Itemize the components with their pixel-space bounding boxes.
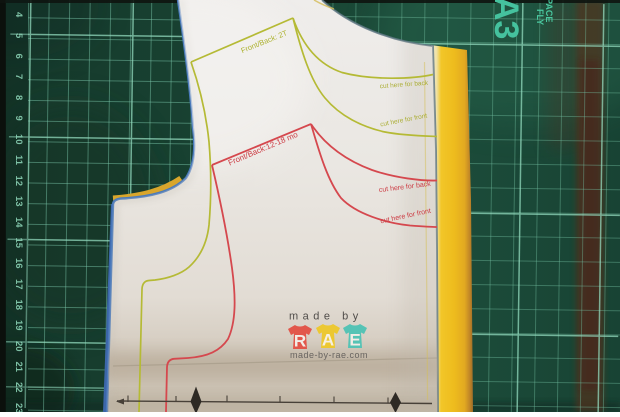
svg-text:10: 10 <box>13 134 24 145</box>
svg-text:12: 12 <box>13 176 24 187</box>
svg-text:9: 9 <box>13 116 24 121</box>
svg-text:8: 8 <box>13 95 24 100</box>
svg-text:A: A <box>322 331 334 350</box>
svg-text:5: 5 <box>13 33 24 39</box>
svg-text:21: 21 <box>13 362 24 373</box>
svg-text:FLY: FLY <box>535 9 545 25</box>
svg-text:4: 4 <box>13 12 24 18</box>
svg-text:R: R <box>294 332 306 351</box>
svg-text:18: 18 <box>13 300 24 311</box>
svg-text:17: 17 <box>13 279 24 290</box>
svg-text:E: E <box>349 331 360 350</box>
svg-text:made by: made by <box>289 311 363 323</box>
svg-text:A3: A3 <box>487 0 525 39</box>
svg-text:14: 14 <box>13 217 24 228</box>
svg-text:23: 23 <box>13 403 24 412</box>
svg-text:20: 20 <box>13 341 24 352</box>
svg-text:made-by-rae.com: made-by-rae.com <box>290 350 368 360</box>
svg-text:22: 22 <box>13 382 24 393</box>
svg-text:15: 15 <box>13 238 24 249</box>
svg-text:7: 7 <box>13 74 24 79</box>
svg-text:6: 6 <box>13 54 24 59</box>
svg-text:19: 19 <box>13 320 24 331</box>
svg-text:13: 13 <box>13 196 24 207</box>
svg-text:16: 16 <box>13 258 24 269</box>
svg-text:11: 11 <box>13 155 24 166</box>
